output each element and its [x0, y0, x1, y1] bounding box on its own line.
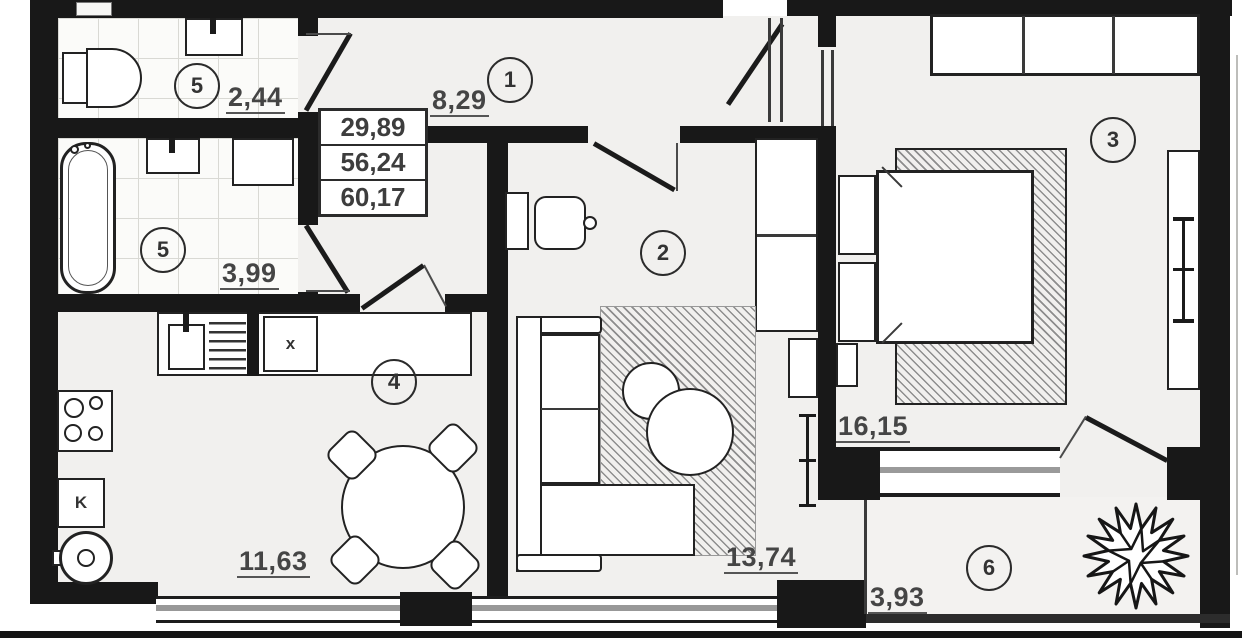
bedroom-radiator-tick-a [1173, 217, 1194, 221]
kitchen-window [156, 596, 400, 623]
wall-window-pier [400, 592, 472, 626]
bedroom-radiator-tick-c [1173, 319, 1194, 323]
toilet-tank [62, 52, 88, 104]
area-label-living: 13,74 [724, 544, 798, 574]
wall-corridor-kitchen-a [30, 294, 360, 312]
entrance-door-frame-a [768, 18, 771, 122]
wall-top-left [35, 0, 723, 18]
area-living-total: 29,89 [321, 111, 425, 144]
kitchen-counter-divider [247, 312, 259, 376]
entrance-door-frame-b [780, 18, 783, 122]
bedroom-balcony-window [880, 447, 1060, 497]
wall-living-bedroom-b [818, 128, 836, 500]
stove [57, 390, 113, 452]
bedroom-wardrobe-divider-a [1022, 16, 1025, 74]
bathroom-door-chord [306, 290, 350, 292]
desk-chair-arm [583, 216, 597, 230]
area-overall-total: 60,17 [321, 179, 425, 214]
vent-shaft [76, 2, 112, 16]
desk [505, 192, 529, 250]
balcony-parapet [866, 614, 1230, 623]
living-radiator-tick-b [799, 459, 816, 462]
stove-burner-2 [89, 396, 103, 410]
room-circle-bathroom: 5 [140, 227, 186, 273]
sofa-backrest [516, 316, 542, 572]
sofa-chaise [540, 484, 695, 556]
kitchen-duct-box: x [263, 316, 318, 372]
wall-wc-bathroom [30, 118, 302, 138]
area-label-balcony: 3,93 [868, 584, 927, 614]
bedroom-door-jamb-left [821, 50, 824, 126]
room-circle-kitchen: 4 [371, 359, 417, 405]
bedroom-wardrobe-divider-b [1112, 16, 1115, 74]
bathtub-tap [70, 145, 79, 154]
wall-bottom-left-block [30, 582, 158, 604]
boiler-box: K [57, 478, 105, 528]
bathtub-tap-2 [84, 142, 91, 149]
balcony-left-line [864, 500, 867, 614]
area-label-bathroom: 3,99 [220, 260, 279, 290]
bedroom-door-jamb-right [831, 50, 834, 126]
wc-door-chord [306, 33, 351, 35]
room-circle-living: 2 [640, 230, 686, 276]
bathroom-sink-tap [169, 138, 175, 153]
room-circle-balcony: 6 [966, 545, 1012, 591]
area-apartment-total: 56,24 [321, 144, 425, 179]
sofa-seat-divider [541, 408, 599, 410]
washing-machine-door [77, 549, 95, 567]
bathtub-inner [68, 150, 108, 286]
wall-balcony-pier-left [836, 447, 880, 500]
bedside-table-bottom [838, 262, 876, 342]
living-door-chord [676, 143, 678, 191]
kitchen-sink-tap [183, 312, 189, 332]
kitchen-drainer [209, 322, 246, 372]
bedroom-radiator-tick-b [1173, 268, 1194, 271]
wall-right [1200, 0, 1230, 628]
wall-bottom-right-block [777, 580, 866, 628]
floor-plan: 29,89 56,24 60,17 x K [0, 0, 1242, 638]
area-label-wc: 2,44 [226, 84, 285, 114]
exterior-line [1236, 55, 1238, 575]
living-cabinet [788, 338, 818, 398]
area-label-hallway: 8,29 [430, 87, 489, 117]
wc-sink-tap [210, 18, 216, 34]
living-radiator-tick-a [799, 414, 816, 417]
living-window [472, 596, 777, 623]
desk-chair [534, 196, 586, 250]
plant-icon [1082, 502, 1190, 610]
wall-bath-corridor-b [298, 112, 318, 225]
bedside-table-top [838, 175, 876, 255]
stove-burner-1 [64, 398, 84, 418]
wall-hall-living-a [428, 126, 588, 143]
sofa-armrest-bottom [516, 554, 602, 572]
stove-burner-3 [64, 424, 82, 442]
photo-bottom-edge [0, 631, 1242, 638]
living-radiator-tick-c [799, 504, 816, 507]
wall-living-bedroom-a [818, 0, 836, 47]
living-wardrobe-divider [757, 234, 816, 237]
area-summary-table: 29,89 56,24 60,17 [318, 108, 428, 217]
bedroom-wardrobe [930, 14, 1200, 76]
room-circle-bedroom: 3 [1090, 117, 1136, 163]
area-label-kitchen: 11,63 [237, 548, 310, 578]
room-circle-hallway: 1 [487, 57, 533, 103]
room-circle-wc: 5 [174, 63, 220, 109]
stove-burner-4 [88, 426, 103, 441]
bathroom-washer [232, 138, 294, 186]
pouf-large [646, 388, 734, 476]
wall-balcony-pier-right [1167, 447, 1200, 500]
bed-mattress [876, 170, 1034, 344]
bedroom-cabinet [836, 343, 858, 387]
area-label-bedroom: 16,15 [836, 413, 910, 443]
